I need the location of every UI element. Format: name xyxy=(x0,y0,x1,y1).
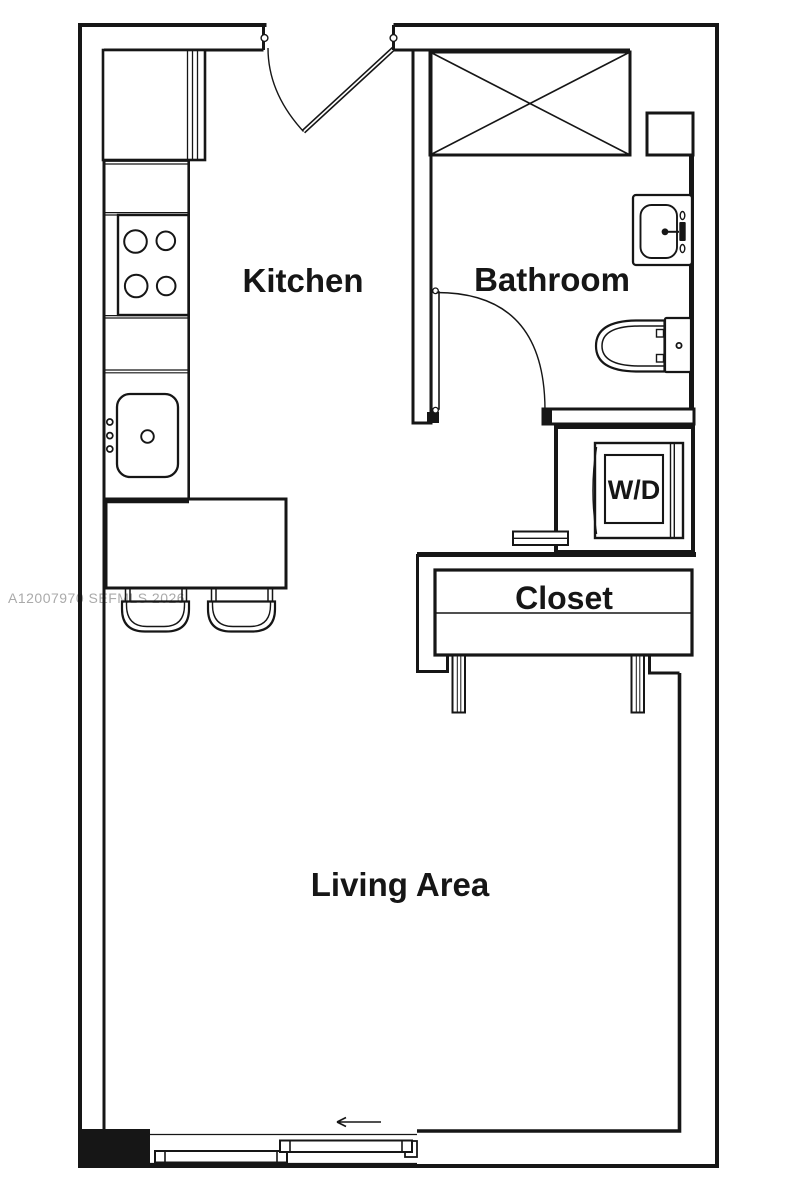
vanity-sink xyxy=(633,195,692,265)
kitchen-sink xyxy=(107,394,178,477)
bathroom-area: Bathroom xyxy=(430,52,693,413)
washer-dryer-closet: W/D xyxy=(513,427,693,552)
bathroom-door xyxy=(432,288,545,413)
closet-door-panel-right xyxy=(632,656,645,713)
mls-watermark: A12007970 SEFMLS 2026 xyxy=(8,590,185,606)
range xyxy=(118,215,189,315)
washer-dryer-label: W/D xyxy=(608,475,660,505)
bar-stool-2 xyxy=(208,589,275,632)
floor-plan: A12007970 SEFMLS 2026 xyxy=(0,0,798,1200)
sliding-door-panel-upper xyxy=(280,1141,412,1153)
closet-area: Closet xyxy=(435,570,692,713)
bathroom-label: Bathroom xyxy=(474,261,630,298)
faucet-icon xyxy=(679,222,685,241)
breakfast-counter xyxy=(106,499,286,588)
bathroom-door-swing-arc xyxy=(437,293,546,411)
closet-door-panel-left xyxy=(453,656,466,713)
entry-door-swing-arc xyxy=(268,48,304,132)
slide-direction-arrow-icon xyxy=(337,1118,381,1127)
washer-dryer: W/D xyxy=(593,443,683,538)
closet-label: Closet xyxy=(515,580,613,616)
entry-door xyxy=(268,47,395,133)
wall-stub xyxy=(78,1129,150,1168)
living-area: Living Area xyxy=(150,866,490,1164)
sliding-door-panel-lower xyxy=(155,1151,287,1163)
shower xyxy=(430,52,630,155)
kitchen-area: Kitchen xyxy=(103,50,364,632)
living-area-label: Living Area xyxy=(311,866,490,903)
toilet xyxy=(596,318,691,372)
refrigerator xyxy=(103,50,205,160)
wall-shelf xyxy=(513,532,568,546)
kitchen-label: Kitchen xyxy=(242,262,363,299)
shower-niche xyxy=(647,113,693,155)
sliding-glass-door xyxy=(150,1118,417,1164)
